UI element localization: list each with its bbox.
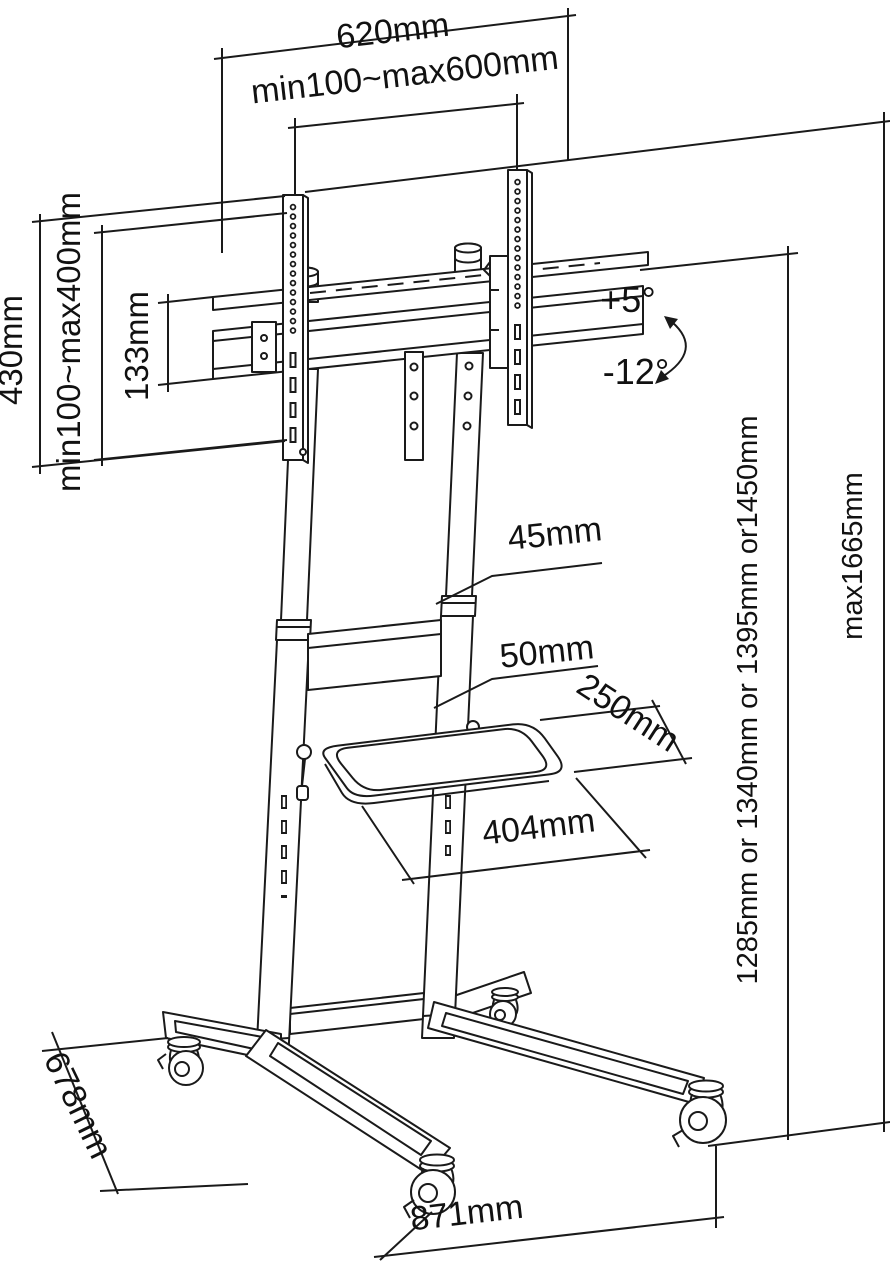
tv-stand-dimensional-drawing: 620mm min100~max600mm 430mm min100~max40… (0, 0, 890, 1285)
label-vesa-height: min100~max400mm (50, 192, 87, 492)
base-legs (163, 1002, 704, 1174)
columns-upper (281, 353, 483, 620)
label-max-height: max1665mm (837, 472, 869, 640)
label-bracket-height: 430mm (0, 295, 29, 405)
label-tilt-up: +5° (600, 279, 655, 320)
label-height-options: 1285mm or 1340mm or 1395mm or1450mm (732, 416, 764, 985)
dim-rail-spacing (158, 294, 213, 392)
label-shelf-width: 404mm (480, 801, 597, 853)
label-base-depth: 678mm (36, 1046, 120, 1165)
caster-back-left (158, 1037, 203, 1085)
crossbar (308, 620, 441, 690)
label-rail-spacing: 133mm (118, 291, 155, 401)
shelf (297, 721, 562, 804)
base-leg-front-right (428, 1002, 704, 1104)
mounting-rails (213, 252, 648, 379)
label-top-width: 620mm (334, 6, 451, 57)
base-leg-front-left (246, 1030, 450, 1174)
vesa-strip-left (283, 195, 308, 463)
label-upper-column: 45mm (506, 510, 604, 558)
vesa-strip-right (508, 170, 532, 428)
label-shelf-depth: 250mm (570, 666, 686, 760)
label-tilt-down: -12° (603, 351, 669, 392)
base-tie-bar (290, 993, 424, 1034)
